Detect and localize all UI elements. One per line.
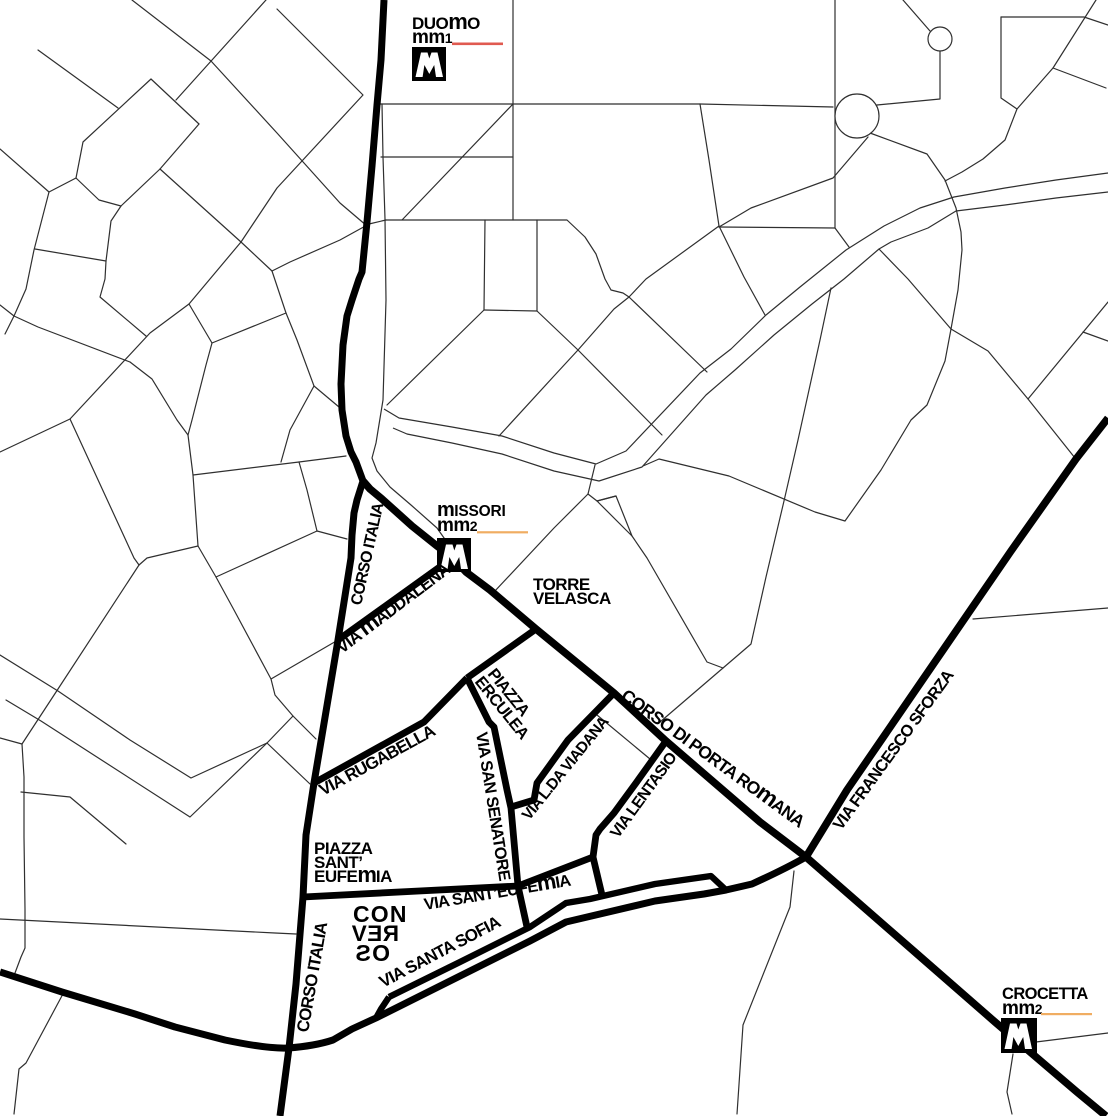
svg-text:OS: OS <box>354 940 390 966</box>
svg-text:mm2: mm2 <box>437 515 478 536</box>
svg-text:mm1: mm1 <box>412 27 453 48</box>
svg-text:VELASCA: VELASCA <box>533 589 611 608</box>
svg-text:mm2: mm2 <box>1002 998 1043 1019</box>
